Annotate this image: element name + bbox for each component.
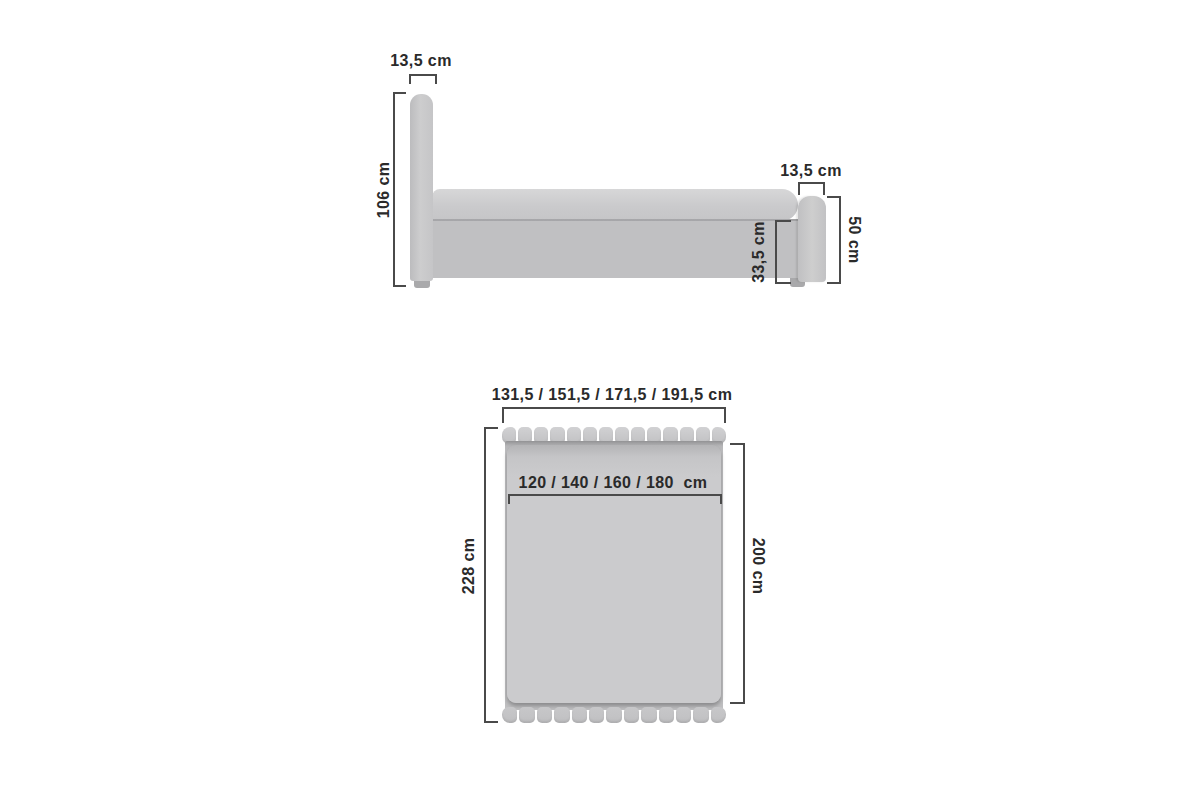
- footboard-width-label: 13,5 cm: [780, 163, 842, 179]
- upholstery-segment: [624, 707, 639, 723]
- bed-dimensions-diagram: 13,5 cm 106 cm 13,5 cm 50 cm 33,5 cm 131…: [0, 0, 1200, 800]
- upholstery-segment: [676, 707, 691, 723]
- upholstery-segment: [659, 707, 674, 723]
- frame-height-bracket: [775, 220, 791, 284]
- upholstery-segment: [606, 707, 621, 723]
- total-length-bracket: [484, 427, 498, 723]
- mattress-width-line: [508, 494, 722, 504]
- overall-width-label: 131,5 / 151,5 / 171,5 / 191,5 cm: [492, 387, 733, 403]
- mattress-side: [432, 189, 798, 221]
- footboard-height-label: 50 cm: [846, 216, 862, 263]
- upholstery-segment: [572, 707, 587, 723]
- upholstery-segment: [693, 707, 708, 723]
- footboard-top-strip: [502, 707, 726, 723]
- upholstery-segment: [641, 707, 656, 723]
- upholstery-segment: [519, 707, 534, 723]
- frame-height-label: 33,5 cm: [751, 221, 767, 283]
- mattress-length-bracket: [730, 443, 745, 704]
- upholstery-segment: [711, 707, 726, 723]
- overall-width-bracket: [502, 407, 726, 423]
- headboard: [410, 94, 433, 281]
- mattress-frame-seam: [432, 219, 798, 221]
- footboard-width-bracket: [798, 182, 825, 195]
- total-height-label: 106 cm: [376, 162, 392, 219]
- footboard-height-bracket: [827, 196, 841, 284]
- mattress-length-label: 200 cm: [750, 538, 766, 595]
- upholstery-segment: [537, 707, 552, 723]
- upholstery-segment: [589, 707, 604, 723]
- mattress-width-label: 120 / 140 / 160 / 180 cm: [519, 475, 708, 491]
- headboard-width-bracket: [409, 74, 437, 84]
- upholstery-segment: [554, 707, 569, 723]
- bed-frame-side: [431, 219, 799, 278]
- total-length-label: 228 cm: [461, 538, 477, 595]
- footboard: [798, 196, 826, 282]
- total-height-bracket: [393, 92, 406, 287]
- headboard-width-label: 13,5 cm: [390, 53, 452, 69]
- upholstery-segment: [502, 707, 517, 723]
